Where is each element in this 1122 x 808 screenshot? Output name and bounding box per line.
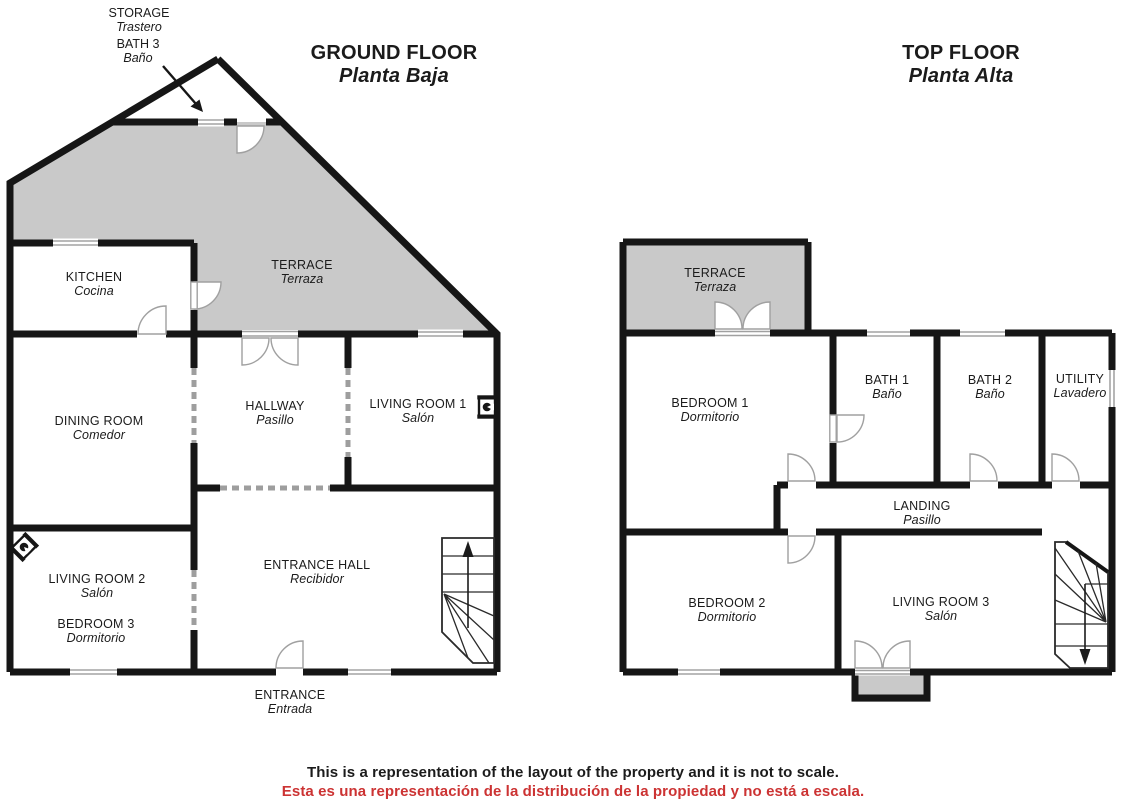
balcony-double-door-icon [855, 641, 910, 676]
room-label-terrace-ground: TERRACE Terraza [271, 258, 332, 286]
kitchen-dining-door-icon [138, 306, 166, 334]
window-icon [867, 330, 910, 339]
window-icon [418, 330, 463, 339]
ground-floor-title-es: Planta Baja [311, 65, 478, 88]
entrance-door-icon [276, 641, 303, 668]
top-floor-title-en: TOP FLOOR [902, 42, 1020, 65]
window-icon [960, 330, 1005, 339]
room-label-entrance-hall: ENTRANCE HALL Recibidor [264, 558, 371, 586]
top-floor-title-es: Planta Alta [902, 65, 1020, 88]
callout-storage: STORAGE Trastero [109, 6, 170, 34]
room-label-kitchen: KITCHEN Cocina [66, 270, 123, 298]
bath2-door-icon [970, 454, 997, 481]
ground-terrace-area [10, 122, 497, 334]
fireplace-icon [477, 395, 496, 418]
ground-floor-title-en: GROUND FLOOR [311, 42, 478, 65]
room-label-bedroom1: BEDROOM 1 Dormitorio [671, 396, 748, 424]
window-icon [678, 668, 720, 677]
hallway-terrace-double-door-icon [242, 330, 298, 365]
floor-plan: GROUND FLOOR Planta Baja TOP FLOOR Plant… [0, 0, 1122, 808]
window-icon [1108, 370, 1117, 407]
room-label-entrance: ENTRANCE Entrada [255, 688, 326, 716]
ground-floor-title: GROUND FLOOR Planta Baja [311, 42, 478, 88]
stairs-up-icon [442, 538, 494, 663]
utility-door-icon [1052, 454, 1079, 481]
window-icon [348, 668, 391, 677]
bath1-door-icon [830, 415, 864, 442]
window-icon [70, 668, 117, 677]
stairs-down-icon [1055, 542, 1108, 668]
room-label-living3: LIVING ROOM 3 Salón [892, 595, 989, 623]
room-label-hallway: HALLWAY Pasillo [245, 399, 304, 427]
bedroom1-door-icon [788, 454, 815, 481]
room-label-bath1: BATH 1 Baño [865, 373, 909, 401]
room-label-living1: LIVING ROOM 1 Salón [369, 397, 466, 425]
room-label-bedroom2: BEDROOM 2 Dormitorio [688, 596, 765, 624]
disclaimer-en: This is a representation of the layout o… [307, 764, 839, 781]
room-label-living2: LIVING ROOM 2 Salón [48, 572, 145, 600]
floor-plan-drawing [0, 0, 1122, 808]
bedroom2-door-icon [788, 536, 815, 563]
room-label-dining: DINING ROOM Comedor [55, 414, 144, 442]
room-label-bedroom3: BEDROOM 3 Dormitorio [57, 617, 134, 645]
window-icon [53, 239, 98, 248]
disclaimer-es: Esta es una representación de la distrib… [282, 783, 864, 800]
room-label-terrace-top: TERRACE Terraza [684, 266, 745, 294]
window-icon [198, 118, 224, 127]
top-floor-plan [623, 242, 1117, 702]
room-label-bath2: BATH 2 Baño [968, 373, 1012, 401]
callout-bath3: BATH 3 Baño [117, 37, 160, 65]
room-label-landing: LANDING Pasillo [893, 499, 950, 527]
room-label-utility: UTILITY Lavadero [1054, 372, 1107, 400]
top-floor-title: TOP FLOOR Planta Alta [902, 42, 1020, 88]
